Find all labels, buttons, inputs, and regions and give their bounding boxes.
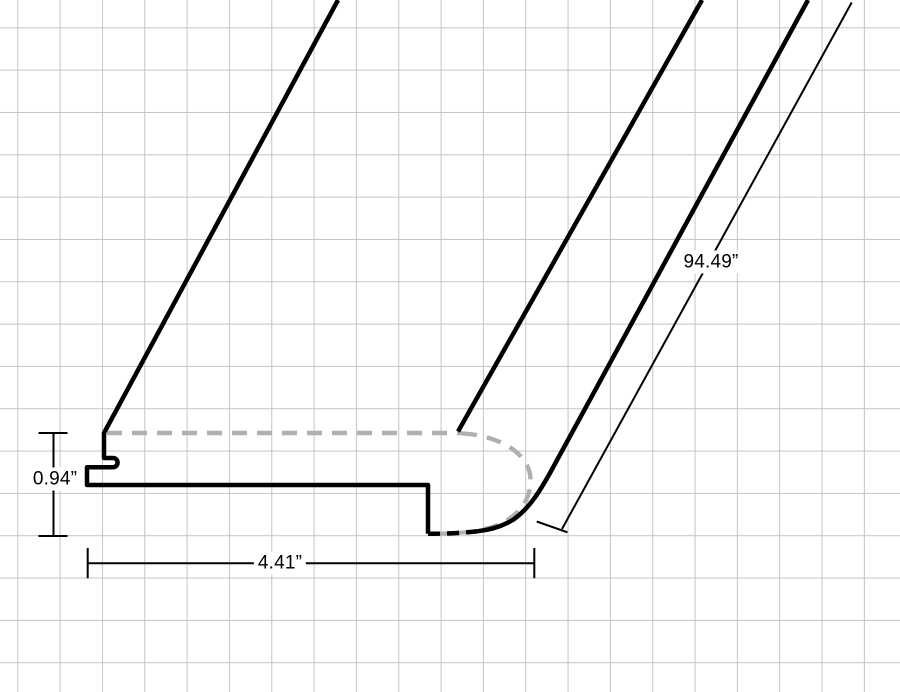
width-dimension bbox=[88, 548, 535, 578]
drawing-canvas: 0.94” 4.41” 94.49” bbox=[0, 0, 900, 692]
thickness-dimension-label: 0.94” bbox=[29, 467, 81, 490]
cross-section-outline bbox=[87, 0, 428, 534]
width-dimension-label: 4.41” bbox=[254, 551, 306, 574]
right-long-edge-and-nose-curve bbox=[478, 0, 808, 531]
nose-bottom-dashed-edge bbox=[428, 531, 478, 534]
dimension-lines bbox=[39, 3, 852, 579]
length-dimension-label: 94.49” bbox=[679, 250, 742, 273]
middle-long-edge-line bbox=[458, 0, 702, 432]
profile-diagram bbox=[0, 0, 900, 692]
